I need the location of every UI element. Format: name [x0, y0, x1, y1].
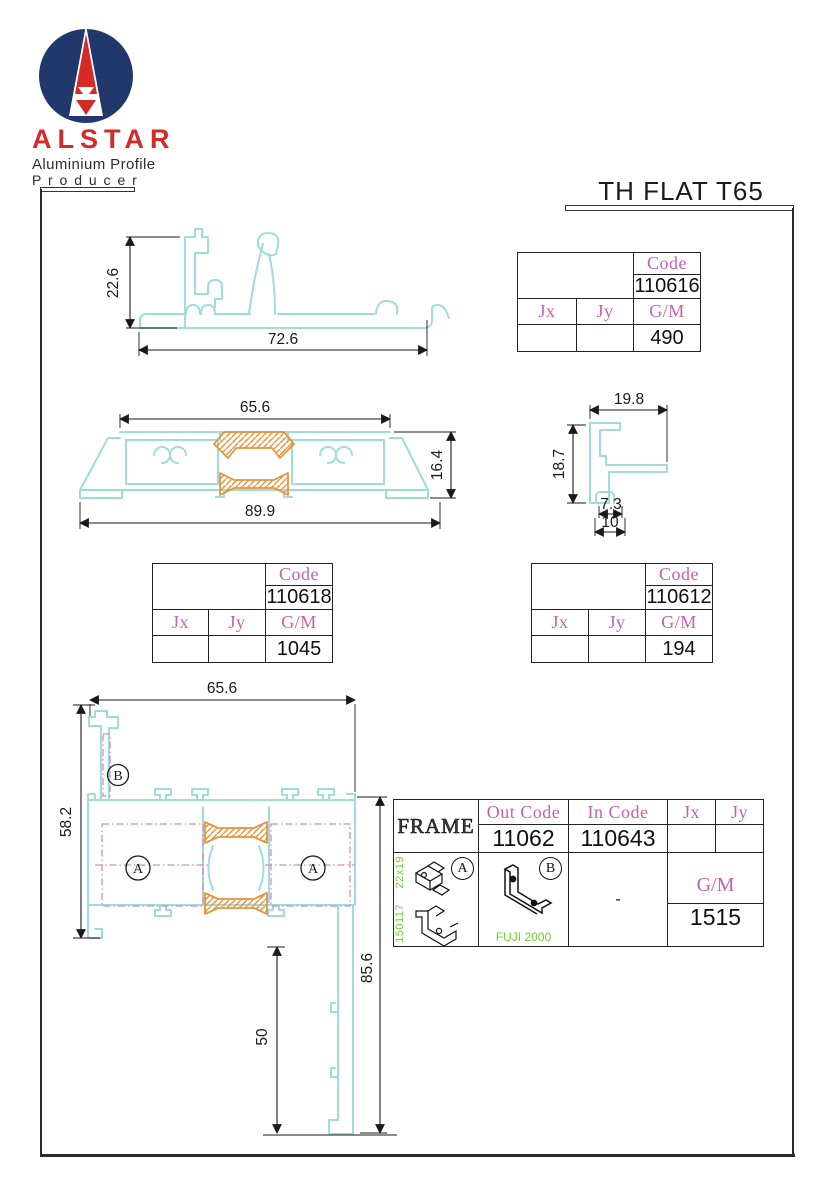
- profile-base-top: [140, 314, 374, 328]
- dim-label-left-height: 58.2: [58, 807, 75, 837]
- jx-header: Jx: [153, 610, 209, 636]
- right-chamber: [292, 440, 384, 484]
- out-code-header: Out Code: [479, 800, 569, 825]
- accessory-a-size: 22x19: [394, 856, 406, 888]
- jx-header: Jx: [532, 610, 589, 636]
- dim-label-top-width: 65.6: [240, 399, 270, 416]
- jy-value: [577, 325, 634, 352]
- brand-name: ALSTAR: [32, 124, 176, 155]
- corner-bracket-icon: [491, 863, 555, 927]
- sheet-title: TH FLAT T65: [568, 176, 794, 207]
- extension-line: [90, 704, 355, 792]
- gm-header: G/M: [646, 610, 713, 636]
- jx-header: Jx: [668, 800, 716, 825]
- border-right: [792, 208, 794, 1157]
- thermal-break-bottom: [205, 893, 267, 914]
- corner-cleat-icon: [406, 901, 466, 945]
- thermal-break-bottom: [220, 473, 288, 495]
- gm-header: G/M: [668, 868, 763, 904]
- profile-right-hook: [376, 301, 397, 314]
- jy-header: Jy: [589, 610, 646, 636]
- border-bottom: [40, 1154, 795, 1157]
- brand-tagline-2: P r o d u c e r: [32, 172, 138, 188]
- accessory-a-cell: 22x19 150117 A: [394, 853, 479, 947]
- dim-label-top-width: 65.6: [207, 680, 237, 697]
- jx-value: [153, 636, 209, 663]
- jy-header: Jy: [716, 800, 764, 825]
- code-value: 110612: [646, 586, 713, 610]
- gm-header: G/M: [266, 610, 333, 636]
- dim-label-height: 22.6: [105, 268, 122, 298]
- jx-value: [668, 825, 716, 853]
- jx-value: [518, 325, 577, 352]
- jy-value: [716, 825, 764, 853]
- gm-cell: G/M 1515: [668, 853, 764, 947]
- dim-label-leg-height: 50: [254, 1028, 271, 1046]
- in-code-accessory-cell: -: [569, 853, 668, 947]
- accessory-b-brand: FUJI 2000: [479, 930, 568, 944]
- jy-header: Jy: [577, 299, 634, 325]
- dim-label-width: 72.6: [268, 331, 298, 348]
- accessory-b-cell: B FUJI 2000: [479, 853, 569, 947]
- empty-cell: [153, 564, 266, 610]
- gm-value: 490: [634, 325, 701, 352]
- border-left: [40, 189, 42, 1157]
- out-code-value: 11062: [479, 825, 569, 853]
- frame-title: FRAME: [394, 800, 479, 853]
- empty-cell: [532, 564, 646, 610]
- extension-line: [590, 405, 667, 462]
- code-value: 110618: [266, 586, 333, 610]
- in-code-header: In Code: [569, 800, 668, 825]
- jy-value: [589, 636, 646, 663]
- profile-arm-left: [249, 244, 263, 314]
- thermal-break-top: [205, 822, 267, 843]
- in-code-value: 110643: [569, 825, 668, 853]
- corner-profile-drawing: 19.8 18.7 7.3 10: [552, 392, 702, 544]
- body-right-cap: [347, 794, 355, 905]
- sill-profile-drawing: 65.6 16.4 89.9: [58, 383, 468, 541]
- center-void: [209, 846, 264, 890]
- balloon-b-label: B: [113, 769, 122, 784]
- balloon-a-right-label: A: [308, 862, 319, 877]
- gm-header: G/M: [634, 299, 701, 325]
- jy-header: Jy: [209, 610, 266, 636]
- jy-value: [209, 636, 266, 663]
- thermal-break-top: [214, 432, 294, 458]
- jx-value: [532, 636, 589, 663]
- spec-table-110618: Code 110618 Jx Jy G/M 1045: [152, 563, 333, 663]
- frame-spec-table: FRAME Out Code In Code Jx Jy 11062 11064…: [393, 799, 764, 947]
- jx-header: Jx: [518, 299, 577, 325]
- spec-table-110616: Code 110616 Jx Jy G/M 490: [517, 252, 701, 352]
- profile-bumps: [186, 305, 215, 314]
- spec-table-110612: Code 110612 Jx Jy G/M 194: [531, 563, 713, 663]
- dim-label-right-height: 85.6: [359, 953, 376, 983]
- body-top-edge: [88, 789, 355, 800]
- code-header: Code: [266, 564, 333, 586]
- extension-line: [120, 414, 390, 428]
- border-top-left-segment: [40, 187, 135, 192]
- balloon-a-left-label: A: [133, 862, 144, 877]
- gm-value: 1515: [668, 904, 763, 931]
- bottom-leg: [329, 905, 353, 1134]
- left-screw-boss: [154, 447, 186, 463]
- left-chamber: [126, 440, 218, 484]
- frame-assembly-drawing: B A A 65.6 58.2 85.6 50: [55, 672, 405, 1150]
- extension-line: [567, 425, 586, 503]
- corner-cleat-icon: [408, 859, 464, 901]
- dim-label-height: 16.4: [429, 450, 446, 481]
- code-value: 110616: [634, 275, 701, 299]
- right-screw-boss: [320, 447, 352, 463]
- dim-label-slot: 7.3: [600, 496, 622, 513]
- gm-value: 1045: [266, 636, 333, 663]
- body-left-cap: [88, 794, 102, 938]
- code-header: Code: [646, 564, 713, 586]
- dim-label-bottom: 10: [601, 514, 619, 531]
- profile-bottom-edge: [120, 490, 390, 497]
- brand-tagline-1: Aluminium Profile: [32, 156, 156, 173]
- dim-label-top: 19.8: [614, 391, 644, 408]
- accessory-a-code: 150117: [394, 904, 406, 943]
- extension-line: [73, 705, 100, 938]
- alstar-logo: [30, 24, 142, 126]
- gm-value: 194: [646, 636, 713, 663]
- profile-right-skirt: [386, 438, 428, 498]
- code-header: Code: [634, 253, 701, 275]
- profile-left-skirt: [80, 438, 122, 498]
- profile-arm-right: [269, 254, 275, 314]
- empty-cell: [518, 253, 634, 299]
- dim-label-bottom-width: 89.9: [245, 503, 275, 520]
- threshold-profile-drawing: 22.6 72.6: [82, 210, 447, 365]
- dim-label-left: 18.7: [551, 449, 568, 479]
